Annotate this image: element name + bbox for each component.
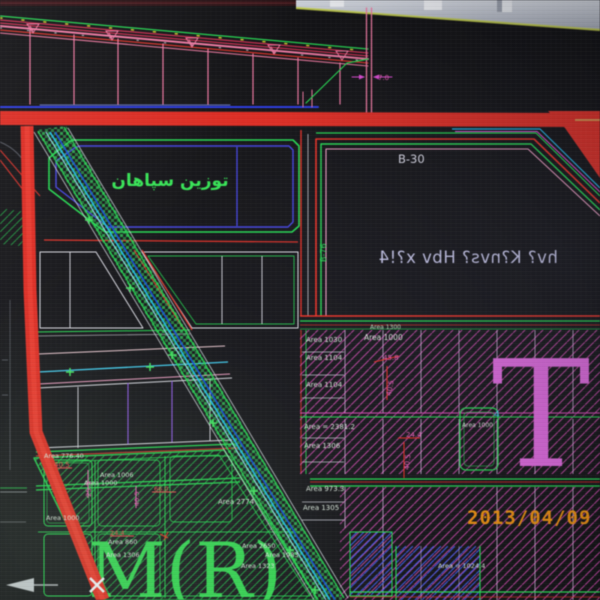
area-label: Area 1300 xyxy=(370,324,401,331)
area-label: Area 2774 xyxy=(218,498,255,506)
area-label: Area 1305 xyxy=(303,504,339,512)
dimension-label: 45.8 xyxy=(383,354,399,362)
b76-label: B-76 xyxy=(319,243,328,262)
blue-hatch-parcel xyxy=(350,532,392,596)
camera-datestamp: 2013/04/09 0 xyxy=(467,507,600,529)
area-label: Area 1000 xyxy=(46,514,80,522)
dimension-label: 40.5 xyxy=(54,461,70,469)
window-fragment xyxy=(424,0,442,10)
area-label: Area 1323 xyxy=(241,562,275,570)
b30-label: B-30 xyxy=(398,152,425,166)
area-label: Area 1983 xyxy=(265,551,299,559)
big-t-label: T xyxy=(492,329,591,501)
cad-canvas[interactable]: 7.0 توزين سپاهان xyxy=(0,0,600,600)
monitor-photo: 7.0 توزين سپاهان xyxy=(0,0,600,600)
parcel-number: 4 xyxy=(494,410,500,420)
area-label: Area 2650 xyxy=(242,542,276,550)
window-fragment xyxy=(330,0,344,7)
area-label: Area 860 xyxy=(108,538,137,546)
area-label: Area = 2381.2 xyxy=(304,423,355,431)
area-label: Area 1030 xyxy=(306,336,342,344)
dimension-label: 25.5 xyxy=(85,481,93,497)
window-divider xyxy=(497,0,502,12)
area-label: Area 1000 xyxy=(364,333,403,342)
area-label: Area 776.40 xyxy=(44,452,84,460)
dimension-label: 24.4 xyxy=(406,431,422,439)
area-label: Area 1104 xyxy=(306,354,343,362)
area-label: Area 1006 xyxy=(100,471,134,479)
dimension-label-gap: 7.0 xyxy=(378,74,389,82)
dimension-label: 24.4 xyxy=(110,529,124,537)
dimension-label: 40.5 xyxy=(133,492,141,506)
area-label: Area = 1024.4 xyxy=(438,562,485,570)
area-label: Area 973.3 xyxy=(306,485,344,493)
area-label: Area 1306 xyxy=(106,551,140,559)
mirrored-annotation: hv? K?nvs? Hbv x?!4 xyxy=(378,248,558,267)
area-label: Area 1104 xyxy=(306,381,343,389)
tozin-parcel-label: توزين سپاهان xyxy=(111,171,228,191)
area-label: Area 1306 xyxy=(304,442,341,450)
dimension-label: 40.5 xyxy=(403,454,412,470)
area-label: Area 1000 xyxy=(462,422,493,429)
dimension-label: 66.0 xyxy=(154,485,168,493)
